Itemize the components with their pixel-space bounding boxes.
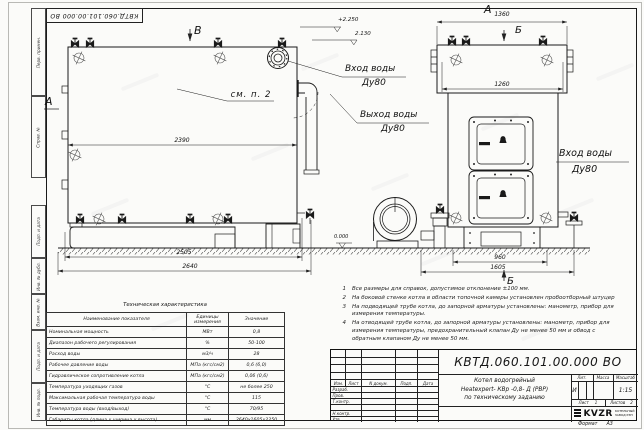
spec-unit: МПа (кгс/см2)	[187, 360, 229, 371]
dim-1605: 1605	[486, 264, 510, 271]
dim-1360: 1360	[490, 11, 514, 18]
outlet-dn: Ду80	[381, 124, 405, 134]
spec-row: Температура воды (вход/выход)°С70/95	[47, 404, 285, 415]
spec-row: Габариты котла (длина х ширина х высота)…	[47, 415, 285, 426]
dim-1260: 1260	[490, 81, 514, 88]
company-subtitle: КОТЕЛЬНЫЙ ЗАВОД РЭП	[615, 410, 635, 417]
scale-value: 1:15	[613, 381, 638, 399]
spec-unit: МПа (кгс/см2)	[187, 371, 229, 382]
spec-value: 70/95	[229, 404, 285, 415]
note-text: На подводящей трубе котла, до запорной а…	[352, 304, 622, 320]
elevation-zero: 0.000	[334, 234, 348, 240]
dim-2390: 2390	[170, 137, 194, 144]
inlet-dn-front: Ду80	[362, 78, 386, 88]
note-number: 4	[338, 320, 346, 343]
spec-value: 115	[229, 393, 285, 404]
inlet-dn-side: Ду80	[572, 164, 597, 175]
spec-table-title: Техническая характеристика	[46, 302, 284, 308]
format-note: Формат А3	[578, 422, 613, 427]
spec-value: 0,06 (0,6)	[229, 371, 285, 382]
spec-unit: МВт	[187, 327, 229, 338]
title-line-1: Котел водогрейный	[474, 377, 535, 386]
lit-value: И	[571, 381, 578, 399]
spec-value: 2640х1605х2250	[229, 415, 285, 426]
mass-label: Масса	[593, 375, 613, 380]
drawing-title: Котел водогрейный Heatexpert- КВр -0,8- …	[438, 374, 571, 406]
note-number: 1	[338, 286, 346, 294]
spec-row: Рабочее давление водыМПа (кгс/см2)0,6 (6…	[47, 360, 285, 371]
note-item: 3На подводящей трубе котла, до запорной …	[338, 304, 622, 320]
spec-name: Рабочее давление воды	[47, 360, 187, 371]
section-label-b-top: Б	[515, 25, 522, 36]
spec-name: Номинальная мощность	[47, 327, 187, 338]
callout-see-p2: см. п. 2	[228, 90, 274, 100]
sig-razrab: Разраб.	[333, 387, 349, 392]
spec-value: 0,8	[229, 327, 285, 338]
view-label-a-front: А	[45, 95, 53, 108]
spec-name: Габариты котла (длина х ширина х высота)	[47, 415, 187, 426]
format-label: Формат	[578, 422, 597, 427]
spec-col-unit: Единицы измерения	[187, 313, 229, 327]
inlet-label-front: Вход воды	[345, 64, 395, 74]
sheets-value: 2	[630, 400, 633, 405]
note-item: 2На боковой стенке котла в области топоч…	[338, 295, 622, 303]
spec-name: Температура уходящих газов	[47, 382, 187, 393]
rev-col-sign: Подп.	[396, 381, 417, 386]
furnace-doors	[469, 117, 533, 224]
title-block: Изм. Лист N докум. Подп. Дата Разраб. Пр…	[330, 349, 637, 421]
company-logo: KVZR КОТЕЛЬНЫЙ ЗАВОД РЭП	[571, 406, 638, 421]
company-name: KVZR	[583, 409, 612, 419]
spec-row: Температура уходящих газов°Сне более 250	[47, 382, 285, 393]
spec-header-row: Наименование показателя Единицы измерени…	[47, 313, 285, 327]
spec-row: Расход водым3/ч28	[47, 349, 285, 360]
sheets-label: Листов	[610, 400, 625, 405]
elevation-top: +2.250	[338, 17, 358, 23]
spec-table: Наименование показателя Единицы измерени…	[46, 312, 285, 426]
sheet-value: 1	[595, 400, 598, 405]
spec-row: Гидравлическое сопротивление котлаМПа (к…	[47, 371, 285, 382]
rev-col-date: Дата	[418, 381, 438, 386]
rev-col-doc: N докум.	[362, 381, 395, 386]
side-dimensions	[421, 22, 574, 276]
spec-unit: °С	[187, 382, 229, 393]
notes-list: 1Все размеры для справок, допустимое отк…	[338, 286, 622, 345]
spec-col-name: Наименование показателя	[47, 313, 187, 327]
sheets-cell: Листов 2	[605, 399, 638, 406]
spec-value: 50-100	[229, 338, 285, 349]
rev-col-izm: Изм.	[332, 381, 345, 386]
spec-name: Диапазон рабочего регулирования	[47, 338, 187, 349]
spec-row: Номинальная мощностьМВт0,8	[47, 327, 285, 338]
spec-unit: мм	[187, 415, 229, 426]
drawing-sheet: Перв. примен. Справ. № Подп. и дата Инв.…	[0, 0, 644, 430]
spec-name: Максимальная рабочая температура воды	[47, 393, 187, 404]
sheet-label: Лист	[579, 400, 589, 405]
company-line2: ЗАВОД РЭП	[615, 414, 635, 418]
outlet-elbow	[292, 80, 319, 174]
lit-label: Лит.	[571, 375, 593, 380]
dim-960: 960	[488, 254, 512, 261]
fan-blower	[374, 198, 419, 249]
spec-row: Максимальная рабочая температура воды°С1…	[47, 393, 285, 404]
scale-label: Масштаб	[613, 375, 638, 380]
spec-name: Расход воды	[47, 349, 187, 360]
spec-col-value: Значение	[229, 313, 285, 327]
dim-2505: 2505	[172, 249, 196, 256]
sig-utv: Утв.	[333, 417, 341, 422]
spec-value: не более 250	[229, 382, 285, 393]
sig-tkontr: Т.контр.	[333, 399, 350, 404]
spec-unit: °С	[187, 393, 229, 404]
note-text: Все размеры для справок, допустимое откл…	[352, 286, 530, 294]
logo-mark-icon	[574, 409, 581, 418]
sig-prov: Пров.	[333, 393, 345, 398]
spec-name: Гидравлическое сопротивление котла	[47, 371, 187, 382]
title-line-3: по техническому заданию	[464, 394, 545, 403]
spec-unit: °С	[187, 404, 229, 415]
note-number: 3	[338, 304, 346, 320]
view-label-b: В	[194, 24, 202, 37]
elevation-mid: 2.130	[355, 31, 371, 37]
inlet-label-side: Вход воды	[559, 148, 612, 159]
note-item: 1Все размеры для справок, допустимое отк…	[338, 286, 622, 294]
title-line-2: Heatexpert- КВр -0,8- Д (РВР)	[461, 386, 548, 395]
note-text: На боковой стенке котла в области топочн…	[352, 295, 615, 303]
sig-nkontr: Н.контр.	[333, 411, 351, 416]
rev-col-list: Лист	[346, 381, 361, 386]
note-number: 2	[338, 295, 346, 303]
note-text: На отводящей трубе котла, до запорной ар…	[352, 320, 622, 343]
note-item: 4На отводящей трубе котла, до запорной а…	[338, 320, 622, 343]
spec-value: 28	[229, 349, 285, 360]
dim-2640: 2640	[178, 263, 202, 270]
spec-row: Диапазон рабочего регулирования%50-100	[47, 338, 285, 349]
spec-unit: %	[187, 338, 229, 349]
spec-unit: м3/ч	[187, 349, 229, 360]
format-value: А3	[606, 422, 612, 427]
sheet-cell: Лист 1	[571, 399, 605, 406]
spec-name: Температура воды (вход/выход)	[47, 404, 187, 415]
title-block-doc-number: КВТД.060.101.00.000 ВО	[438, 350, 638, 374]
outlet-label: Выход воды	[360, 110, 417, 120]
inlet-flange	[268, 48, 289, 69]
spec-value: 0,6 (6,0)	[229, 360, 285, 371]
